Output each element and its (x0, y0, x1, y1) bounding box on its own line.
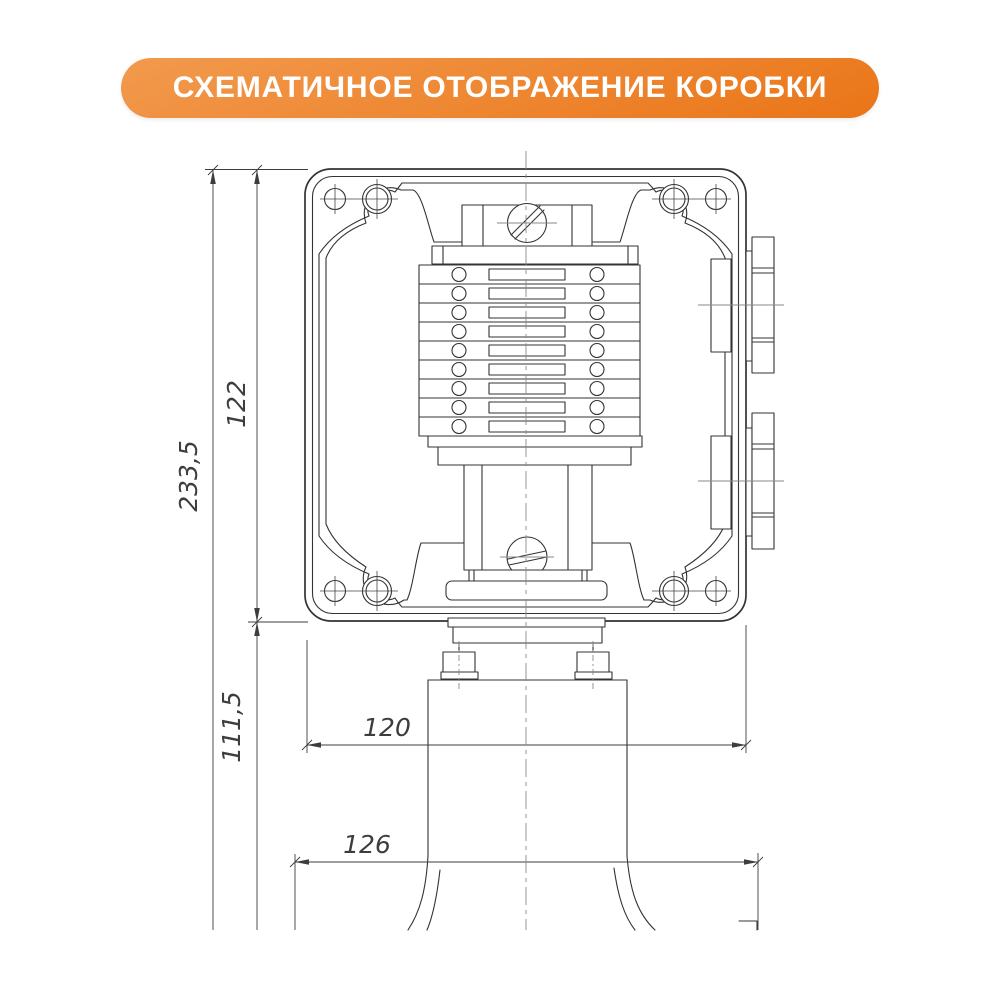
dimension-bottom-width: 126 (290, 830, 763, 930)
gland-inner-flange (711, 436, 731, 529)
lower-flange-plate (448, 618, 605, 627)
dimension-lower-section: 111,5 (217, 622, 308, 930)
cylinder-body (408, 680, 655, 930)
mounting-bolt-left (441, 643, 478, 679)
page: СХЕМАТИЧНОЕ ОТОБРАЖЕНИЕ КОРОБКИ (0, 0, 1000, 1000)
dimension-flange-width: 120 (302, 625, 751, 753)
dimension-box-height: 122 (222, 165, 262, 627)
terminal-block (419, 265, 640, 436)
clamp-bracket (432, 204, 638, 265)
gland-inner-flange (711, 259, 731, 352)
dimension-label-bottom-width: 126 (343, 830, 391, 859)
center-column (464, 465, 592, 577)
dimension-label-box-height: 122 (222, 380, 251, 428)
mounting-bolt-right (575, 643, 612, 679)
technical-drawing: 233,5 122 111,5 120 (0, 0, 1000, 1000)
block-steps (428, 436, 642, 465)
dimension-label-lower-section: 111,5 (217, 691, 246, 763)
dimension-total-height: 233,5 (174, 165, 308, 930)
bracket-base-plate (432, 246, 638, 264)
dimension-label-total-height: 233,5 (174, 440, 203, 512)
dimension-label-flange-width: 120 (363, 713, 411, 742)
clipped-corner-fragment (739, 921, 757, 930)
